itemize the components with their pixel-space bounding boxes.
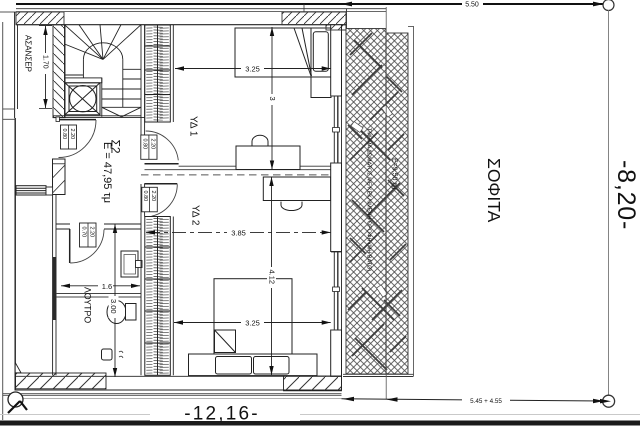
svg-text:-12,16-: -12,16- <box>184 403 260 424</box>
svg-text:4.12: 4.12 <box>268 270 277 285</box>
svg-text:3.25: 3.25 <box>245 319 260 328</box>
svg-text:2.20: 2.20 <box>150 139 156 150</box>
svg-text:E = 47,95 τμ: E = 47,95 τμ <box>101 142 113 203</box>
svg-text:1.6: 1.6 <box>102 282 112 291</box>
svg-text:2.20: 2.20 <box>89 227 95 238</box>
svg-text:3: 3 <box>268 97 277 101</box>
svg-text:ΤΜΗΜΑ ΔΩΜΑΤΟΣ ΜΕ ΚΕΚΛΙΜΕΝΗ ΟΡΟ: ΤΜΗΜΑ ΔΩΜΑΤΟΣ ΜΕ ΚΕΚΛΙΜΕΝΗ ΟΡΟΦΗ (ΜΗ ΒΑΤ… <box>366 128 372 271</box>
svg-text:ΣΟΦΙΤΑ: ΣΟΦΙΤΑ <box>484 158 504 223</box>
svg-text:0.70: 0.70 <box>80 227 86 238</box>
svg-text:Ε=9,50 τμ: Ε=9,50 τμ <box>391 158 398 189</box>
svg-text:0.80: 0.80 <box>141 139 147 150</box>
svg-text:-8,20-: -8,20- <box>612 160 640 230</box>
svg-text:ΛΟΥΤΡΟ: ΛΟΥΤΡΟ <box>82 287 92 323</box>
svg-text:3.25: 3.25 <box>245 65 260 74</box>
svg-text:ΥΔ 1: ΥΔ 1 <box>188 116 199 137</box>
svg-text:ΥΔ 2: ΥΔ 2 <box>190 205 201 226</box>
svg-text:ΑΣΑΝΣΕΡ: ΑΣΑΝΣΕΡ <box>24 35 33 72</box>
svg-text:3.85: 3.85 <box>231 229 246 238</box>
svg-text:2.20: 2.20 <box>69 129 75 140</box>
svg-text:1.70: 1.70 <box>42 55 49 69</box>
svg-text:2.20: 2.20 <box>150 191 156 202</box>
svg-text:5.45 + 4.55: 5.45 + 4.55 <box>470 398 502 405</box>
svg-text:0.80: 0.80 <box>61 129 67 140</box>
svg-text:5.50: 5.50 <box>465 2 479 9</box>
svg-text:3.00: 3.00 <box>109 299 118 314</box>
svg-text:0.80: 0.80 <box>142 191 148 202</box>
